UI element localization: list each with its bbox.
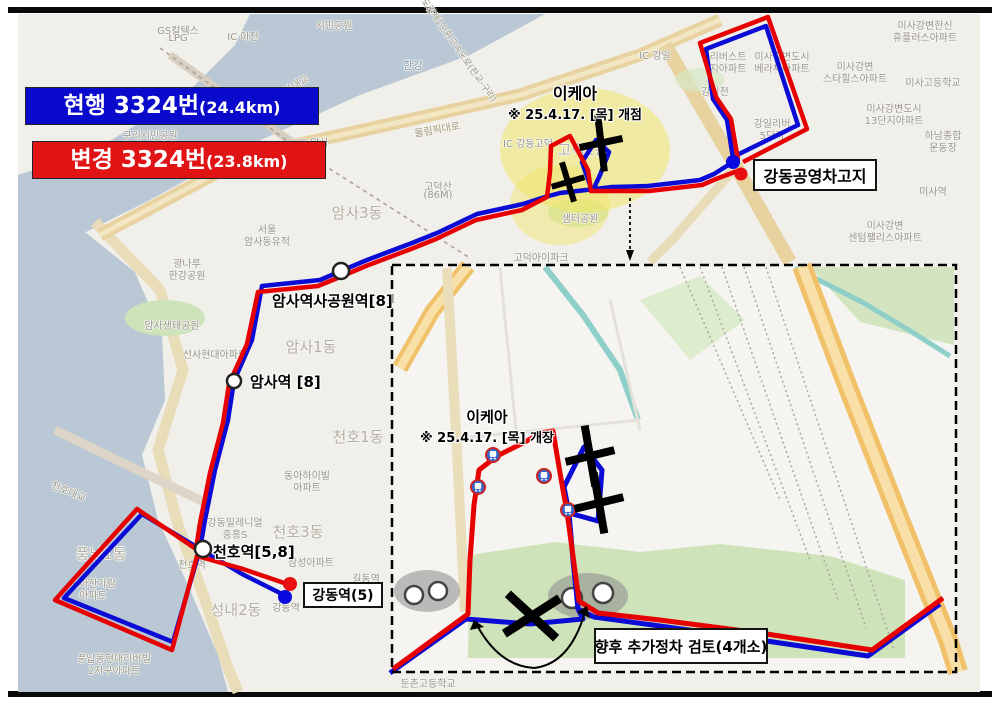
legend-current-label: 현행 3324번: [64, 88, 200, 124]
gangdong-terminal-box: 강동역(5): [303, 582, 383, 608]
legend-changed-label: 변경 3324번: [71, 142, 207, 178]
depot-label-box: 강동공영차고지: [753, 159, 877, 191]
legend-current-dist: (24.4km): [199, 98, 280, 117]
slide-map: GS칼텍스LPGIC 아천시민공원구리시민공원구리암사대교한강수도권제1순환고속…: [0, 0, 999, 705]
station-amsa-park-label: 암사역사공원역[8]: [272, 290, 393, 311]
legend-current: 현행 3324번(24.4km): [25, 87, 319, 125]
ikea-main-callout: 이케아 ※ 25.4.17. [목] 개점: [495, 80, 655, 123]
station-amsa-label: 암사역 [8]: [250, 371, 321, 392]
gangdong-terminal-label: 강동역(5): [312, 585, 373, 605]
ikea-main-subtitle: ※ 25.4.17. [목] 개점: [495, 104, 655, 123]
ikea-main-title: 이케아: [495, 80, 655, 104]
ikea-inset-title: 이케아: [407, 406, 567, 427]
future-stops-box: 향후 추가정차 검토(4개소): [594, 628, 768, 664]
ikea-inset-subtitle: ※ 25.4.17. [목] 개장: [407, 427, 567, 446]
depot-label: 강동공영차고지: [763, 163, 866, 187]
legend-changed: 변경 3324번(23.8km): [32, 141, 326, 179]
callout-layer: 현행 3324번(24.4km) 변경 3324번(23.8km) 이케아 ※ …: [0, 0, 999, 705]
future-stops-label: 향후 추가정차 검토(4개소): [595, 636, 768, 657]
legend-changed-dist: (23.8km): [206, 152, 287, 171]
station-cheonho-label: 천호역[5,8]: [213, 541, 295, 562]
ikea-inset-callout: 이케아 ※ 25.4.17. [목] 개장: [407, 406, 567, 446]
